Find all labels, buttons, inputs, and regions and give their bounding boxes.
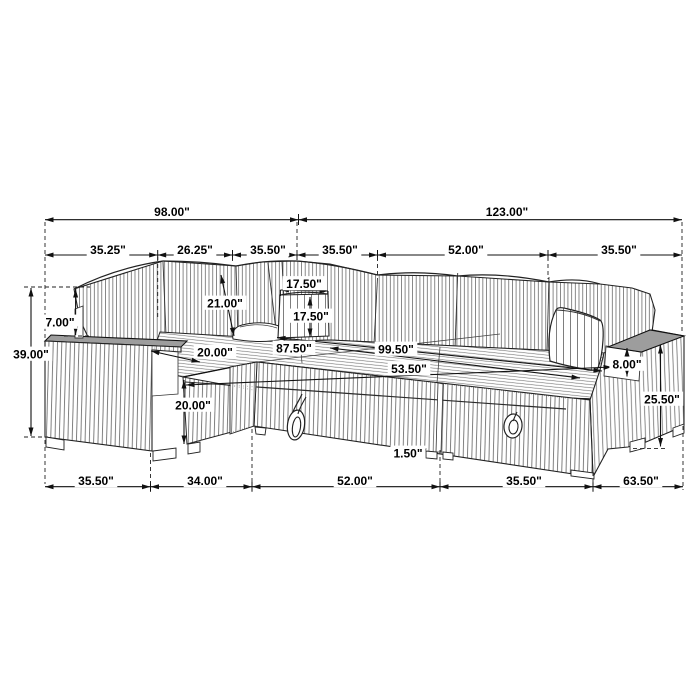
svg-text:20.00": 20.00": [197, 345, 233, 359]
svg-text:20.00": 20.00": [175, 398, 211, 412]
svg-text:52.00": 52.00": [448, 243, 484, 257]
svg-text:35.50": 35.50": [601, 243, 637, 257]
svg-text:99.50": 99.50": [378, 342, 414, 356]
svg-text:1.50": 1.50": [393, 446, 422, 460]
svg-text:63.50": 63.50": [623, 474, 659, 488]
svg-text:17.50": 17.50": [286, 277, 322, 291]
svg-text:35.50": 35.50": [506, 474, 542, 488]
svg-text:87.50": 87.50": [276, 341, 312, 355]
svg-text:8.00": 8.00": [612, 357, 641, 371]
svg-text:35.50": 35.50": [250, 243, 286, 257]
svg-text:17.50": 17.50": [293, 309, 329, 323]
svg-text:52.00": 52.00": [337, 474, 373, 488]
svg-text:123.00": 123.00": [486, 205, 528, 219]
svg-text:7.00": 7.00": [45, 315, 74, 329]
svg-text:35.25": 35.25": [90, 243, 126, 257]
svg-text:34.00": 34.00": [187, 474, 223, 488]
svg-text:35.50": 35.50": [322, 243, 358, 257]
svg-text:25.50": 25.50": [644, 392, 680, 406]
svg-text:39.00": 39.00": [13, 347, 49, 361]
svg-text:98.00": 98.00": [154, 205, 190, 219]
svg-text:21.00": 21.00": [207, 296, 243, 310]
svg-text:53.50": 53.50": [391, 362, 427, 376]
svg-text:26.25": 26.25": [177, 243, 213, 257]
svg-text:35.50": 35.50": [78, 474, 114, 488]
